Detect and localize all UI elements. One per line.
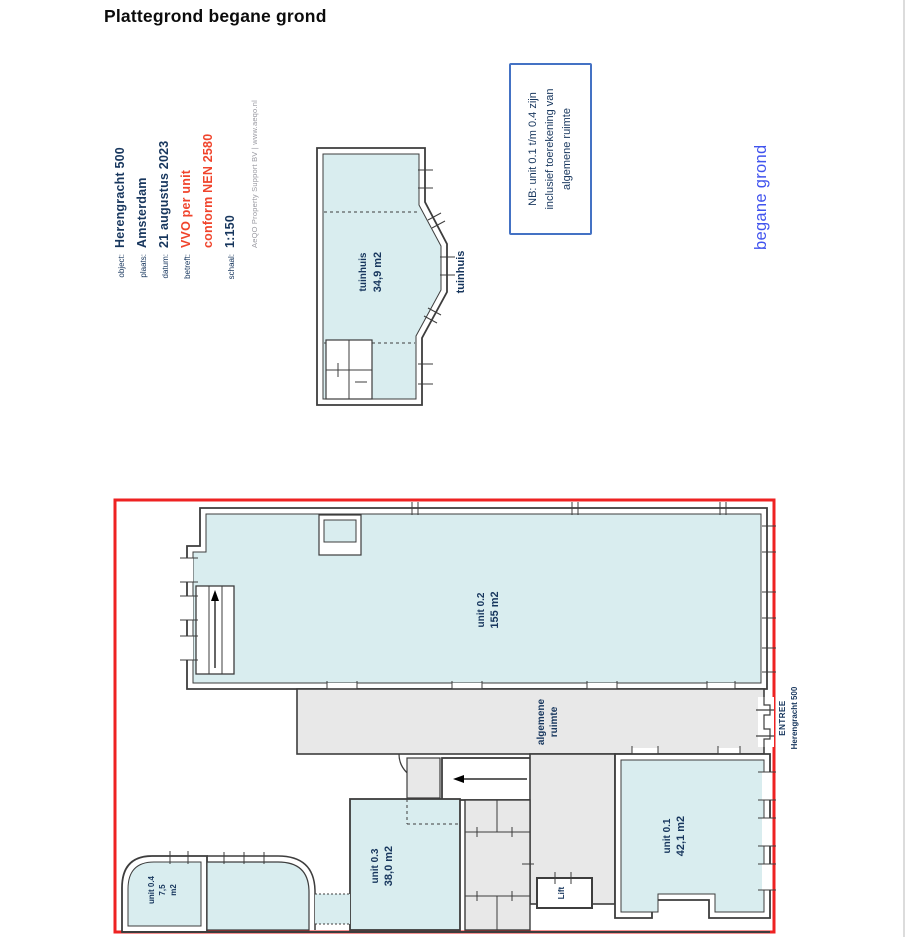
page-title: Plattegrond begane grond xyxy=(104,6,327,27)
entree-line-2: Herengracht 500 xyxy=(789,652,801,784)
room-unit-0-3 xyxy=(350,799,460,930)
common-area-label-1: algemene xyxy=(536,698,547,745)
nb-note-box-wrap: NB: unit 0.1 t/m 0.4 zijn inclusief toer… xyxy=(509,63,592,235)
nb-line-3: algemene ruimte xyxy=(559,108,576,190)
room-common-area xyxy=(297,689,764,754)
floorplan-page: Plattegrond begane grond object: Herengr… xyxy=(0,0,910,937)
unit-0-2-name: unit 0.2 xyxy=(476,592,487,627)
floor-label: begane grond xyxy=(752,110,771,250)
meta-value: conform NEN 2580 xyxy=(201,134,215,248)
entree-line-1: ENTREE xyxy=(777,652,789,784)
meta-value: VVO per unit xyxy=(179,170,193,248)
small-room-inner xyxy=(324,520,356,542)
unit-0-4-name: unit 0.4 xyxy=(147,875,156,904)
meta-value: 21 augustus 2023 xyxy=(157,141,171,248)
garden-room-area: 34,9 m2 xyxy=(372,252,384,292)
garden-outside-label: tuinhuis xyxy=(455,245,467,299)
meta-label: plaats: xyxy=(139,248,148,290)
nb-line-2: inclusief toerekening van xyxy=(542,88,559,209)
room-unit-0-1 xyxy=(621,760,764,912)
unit-0-3-name: unit 0.3 xyxy=(370,848,381,883)
meta-row-plaats: plaats: Amsterdam xyxy=(135,28,157,290)
entree-label: ENTREE Herengracht 500 xyxy=(777,652,801,784)
unit-0-1-area: 42,1 m2 xyxy=(675,816,687,856)
unit-0-3-area: 38,0 m2 xyxy=(383,846,395,886)
nb-line-1: NB: unit 0.1 t/m 0.4 zijn xyxy=(525,92,542,206)
meta-row-betreft-2: conform NEN 2580 xyxy=(201,28,223,290)
unit-0-4-area: 7,5 xyxy=(158,884,167,896)
annex-room xyxy=(207,862,309,930)
meta-label: betreft: xyxy=(183,248,192,290)
unit-0-2-area: 155 m2 xyxy=(489,591,501,628)
meta-row-datum: datum: 21 augustus 2023 xyxy=(157,28,179,290)
meta-value: Amsterdam xyxy=(135,177,149,248)
meta-label: schaal: xyxy=(227,248,236,290)
lift-label: Lift xyxy=(557,886,566,899)
page-edge-line xyxy=(903,0,905,937)
building-walls xyxy=(122,502,776,932)
meta-label: object: xyxy=(117,248,126,290)
company-credit: AeQO Property Support BV | www.aeqo.nl xyxy=(250,28,259,290)
meta-row-schaal: schaal: 1:150 xyxy=(223,28,245,290)
small-grey-room xyxy=(407,758,440,798)
annex-passage xyxy=(315,894,350,924)
unit-0-4-area-unit: m2 xyxy=(169,884,178,896)
meta-value: Herengracht 500 xyxy=(113,147,127,248)
common-area-label-2: ruimte xyxy=(549,706,560,737)
garden-house-walls xyxy=(317,148,455,405)
nb-note-box: NB: unit 0.1 t/m 0.4 zijn inclusief toer… xyxy=(509,63,592,235)
meta-value: 1:150 xyxy=(223,215,237,248)
garden-room-name: tuinhuis xyxy=(358,252,369,291)
unit-0-1-name: unit 0.1 xyxy=(662,818,673,853)
entrance-portal xyxy=(756,697,774,747)
meta-row-betreft: betreft: VVO per unit xyxy=(179,28,201,290)
main-floor-plan: unit 0.2 155 m2 algemene ruimte unit 0.1… xyxy=(112,496,780,937)
drawing-metadata-block: object: Herengracht 500 plaats: Amsterda… xyxy=(113,28,259,290)
meta-row-object: object: Herengracht 500 xyxy=(113,28,135,290)
meta-label: datum: xyxy=(161,248,170,290)
